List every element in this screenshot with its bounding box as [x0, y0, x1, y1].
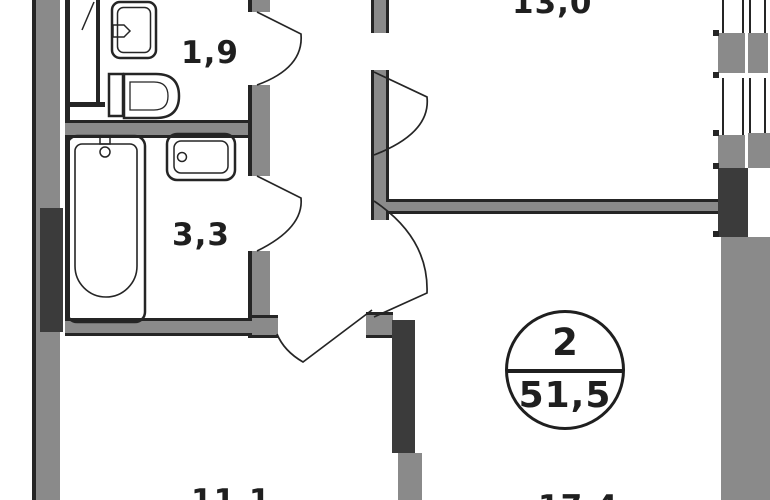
room-label-bathroom: 3,3: [172, 218, 230, 252]
stamp-total-area: 51,5: [508, 375, 622, 416]
floor-plan: 1,9 3,3 13,0 11,1 17,4 2 51,5: [0, 0, 770, 500]
door-swing-living: [374, 201, 427, 317]
stamp-room-count: 2: [508, 321, 622, 364]
sink-icon: [112, 2, 156, 58]
door-swing-entry: [277, 310, 372, 362]
shaft-diagonal-line: [82, 2, 94, 30]
room-label-room-a: 11,1: [191, 484, 272, 500]
bathtub-icon: [67, 136, 145, 322]
apartment-stamp: 2 51,5: [505, 310, 625, 430]
fixtures-layer: [0, 0, 770, 500]
room-label-kitchen: 13,0: [512, 0, 593, 20]
door-swing-kitchen: [374, 72, 427, 155]
door-swing-bathroom: [257, 176, 301, 251]
room-label-room-b: 17,4: [538, 490, 619, 500]
toilet-icon: [109, 74, 179, 118]
washbasin-icon: [167, 134, 235, 180]
room-label-wc: 1,9: [181, 36, 239, 70]
door-swing-wc: [257, 12, 301, 85]
stamp-divider-line: [506, 369, 624, 373]
